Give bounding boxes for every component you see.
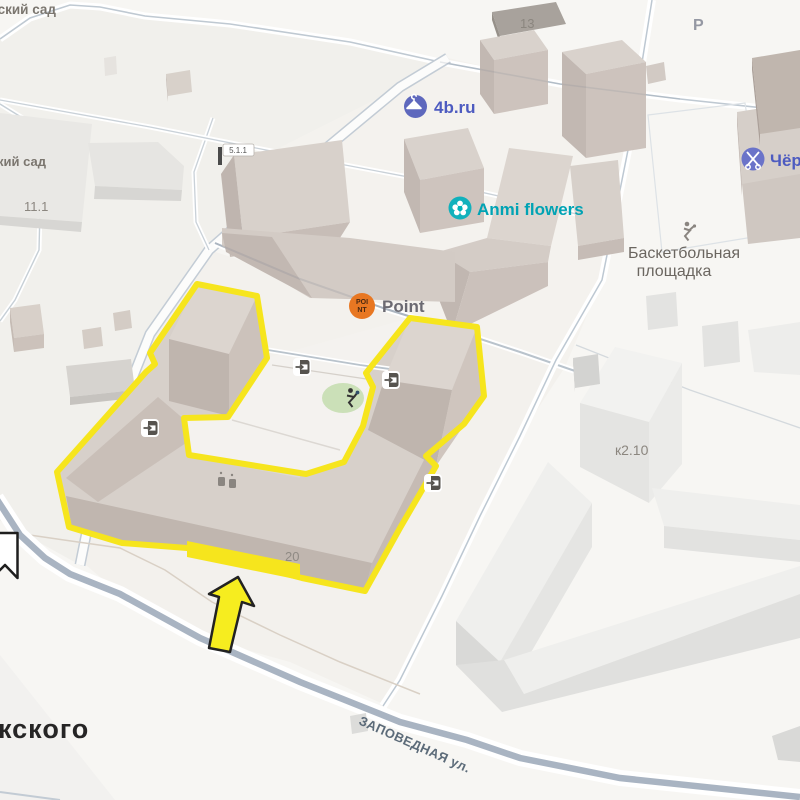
svg-text:POI: POI [356, 299, 368, 306]
svg-text:20: 20 [285, 549, 299, 564]
svg-text:кский сад: кский сад [0, 2, 56, 17]
svg-text:13: 13 [520, 16, 534, 31]
svg-text:Р: Р [693, 17, 704, 34]
svg-text:4b.ru: 4b.ru [434, 98, 476, 117]
svg-text:Point: Point [382, 297, 425, 316]
svg-text:кий сад: кий сад [0, 154, 47, 169]
svg-text:площадка: площадка [637, 263, 712, 280]
svg-text:5.1.1: 5.1.1 [229, 146, 247, 155]
svg-text:Чёрн: Чёрн [770, 151, 800, 170]
svg-text:11.1: 11.1 [24, 199, 48, 214]
svg-text:к2.10: к2.10 [615, 442, 649, 458]
svg-text:NT: NT [357, 307, 367, 314]
svg-text:Баскетбольная: Баскетбольная [628, 245, 740, 262]
svg-text:кского: кского [0, 714, 89, 744]
svg-text:Anmi flowers: Anmi flowers [477, 200, 584, 219]
